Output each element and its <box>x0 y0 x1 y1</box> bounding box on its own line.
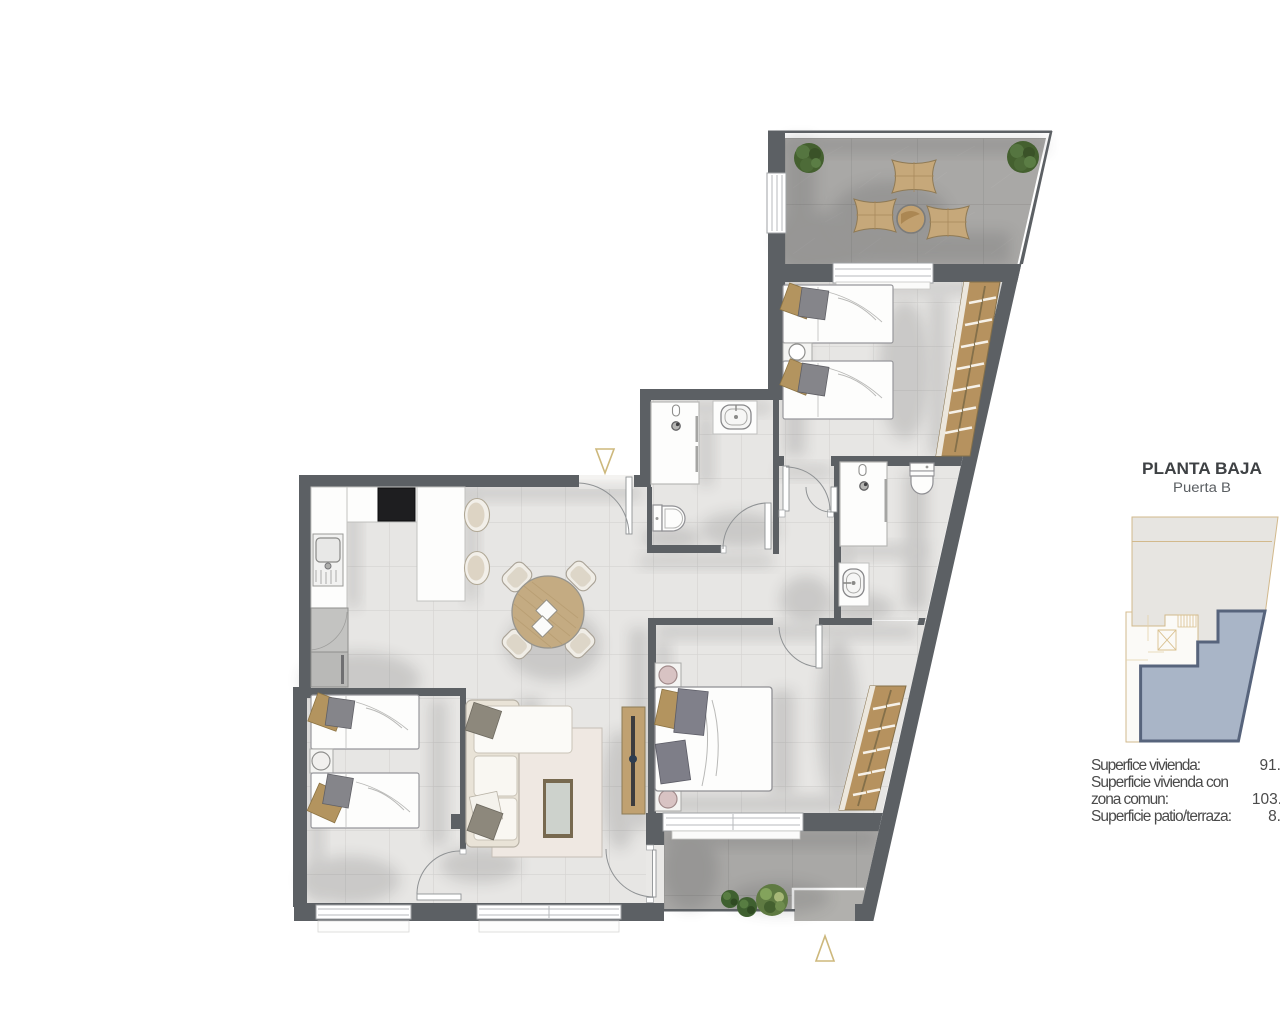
svg-text:PLANTA BAJA: PLANTA BAJA <box>1142 460 1262 478</box>
svg-text:Superficie patio/terraza:: Superficie patio/terraza: <box>1091 808 1232 825</box>
svg-text:zona comun:: zona comun: <box>1091 791 1169 808</box>
svg-text:Superfice vivienda:: Superfice vivienda: <box>1091 757 1201 774</box>
svg-text:Superficie vivienda con: Superficie vivienda con <box>1091 774 1229 791</box>
svg-text:Puerta B: Puerta B <box>1173 480 1231 495</box>
svg-text:8.: 8. <box>1268 808 1280 825</box>
svg-text:91.: 91. <box>1259 757 1280 774</box>
svg-text:103.: 103. <box>1252 791 1280 808</box>
